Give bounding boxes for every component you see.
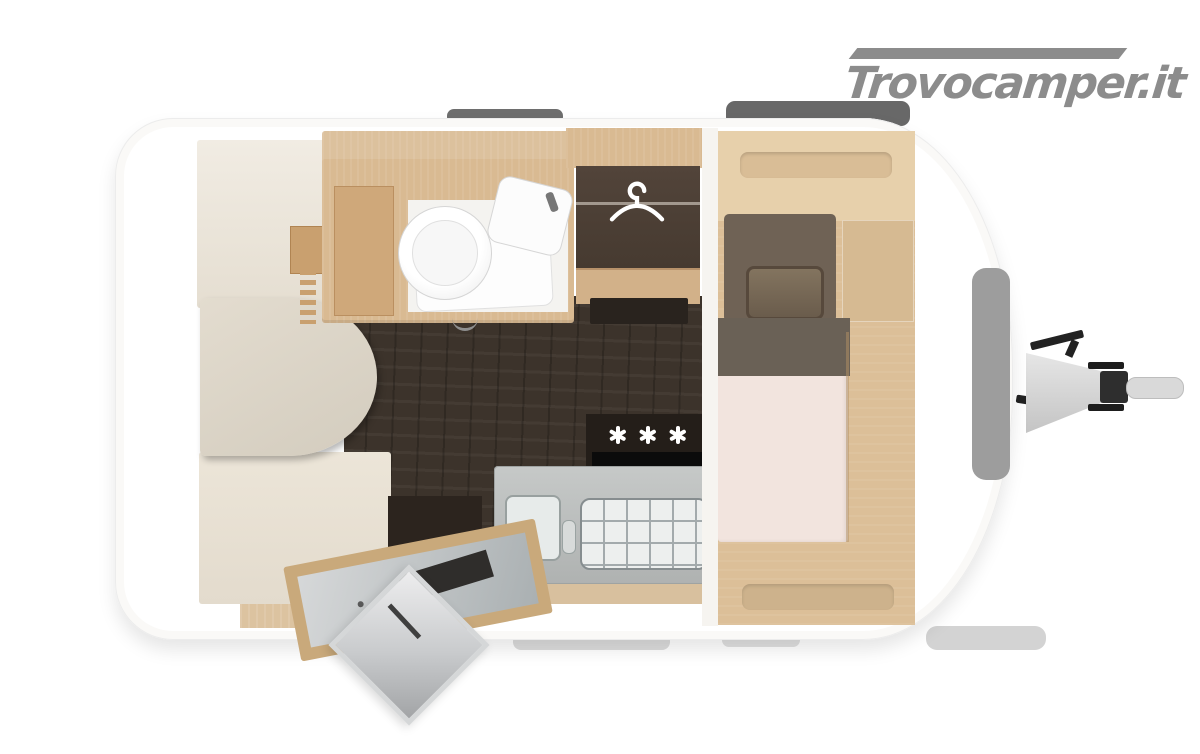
bed-foot-recess [742, 584, 894, 610]
bed-pillow-inner [746, 266, 824, 320]
front-window [972, 268, 1010, 480]
asterisk-icon [668, 426, 686, 444]
toilet-lid [412, 220, 478, 286]
asterisk-icon [608, 426, 626, 444]
heater-fins [300, 270, 316, 324]
gas-stove-icon [580, 498, 708, 570]
logo-text: Trovocamper.it [842, 58, 1192, 109]
tow-hitch-dash-top [1088, 362, 1124, 369]
trovocamper-watermark: Trovocamper.it [845, 34, 1190, 116]
bed-side-cabinet [842, 220, 914, 322]
wardrobe-floor-mat [590, 298, 688, 324]
bed-blanket [718, 318, 850, 376]
bed-partition-wall [702, 128, 718, 626]
tow-hitch-coupler [1126, 377, 1184, 399]
bottom-skirt-right [926, 626, 1046, 650]
caravan-floorplan-page: Trovocamper.it [0, 0, 1200, 754]
bed-head-recess [740, 152, 892, 178]
bed-frame-divider [846, 332, 849, 542]
tow-hitch-neck [1100, 371, 1128, 403]
wardrobe-top-panel [566, 128, 708, 168]
asterisk-icon [638, 426, 656, 444]
tow-hitch-handle-nub [1065, 339, 1079, 358]
door-handle [388, 604, 422, 640]
gas-burners-asterisks-icon [592, 420, 702, 450]
tow-hitch-dash-bottom [1088, 404, 1124, 411]
hanger-icon [606, 176, 668, 228]
bathroom-shelf [334, 186, 394, 316]
kitchen-faucet [562, 520, 576, 554]
